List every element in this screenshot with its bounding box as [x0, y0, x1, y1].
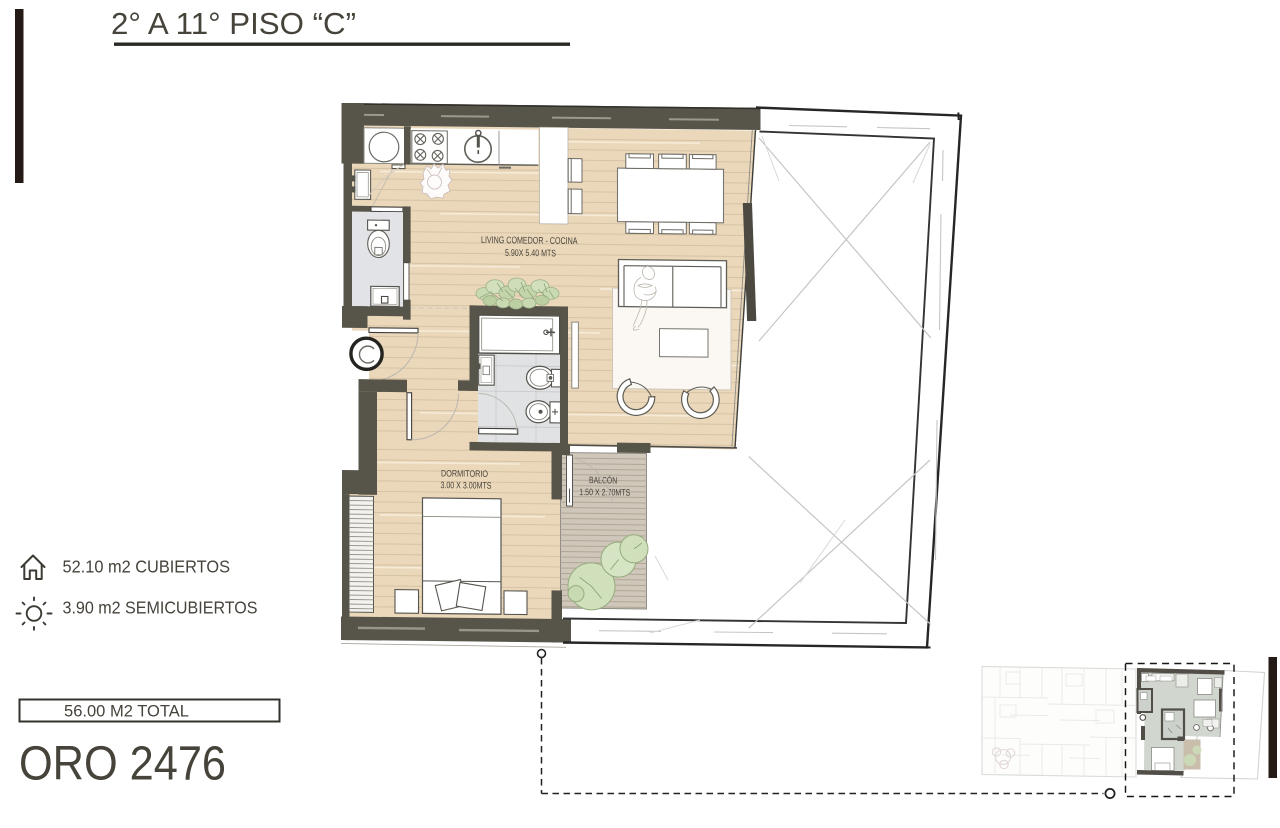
- svg-text:1.50 X 2.70MTS: 1.50 X 2.70MTS: [579, 487, 630, 498]
- svg-text:DORMITORIO: DORMITORIO: [441, 468, 488, 479]
- svg-text:5.90X 5.40 MTS: 5.90X 5.40 MTS: [505, 248, 556, 260]
- svg-text:52.10 m2 CUBIERTOS: 52.10 m2 CUBIERTOS: [63, 557, 231, 577]
- svg-text:ORO 2476: ORO 2476: [19, 738, 226, 791]
- svg-text:2° A 11° PISO “C”: 2° A 11° PISO “C”: [111, 6, 356, 41]
- svg-text:LIVING COMEDOR - COCINA: LIVING COMEDOR - COCINA: [481, 235, 578, 247]
- svg-text:56.00 M2 TOTAL: 56.00 M2 TOTAL: [64, 703, 189, 721]
- svg-text:3.90 m2 SEMICUBIERTOS: 3.90 m2 SEMICUBIERTOS: [63, 598, 258, 618]
- svg-text:3.00 X 3.00MTS: 3.00 X 3.00MTS: [441, 480, 492, 491]
